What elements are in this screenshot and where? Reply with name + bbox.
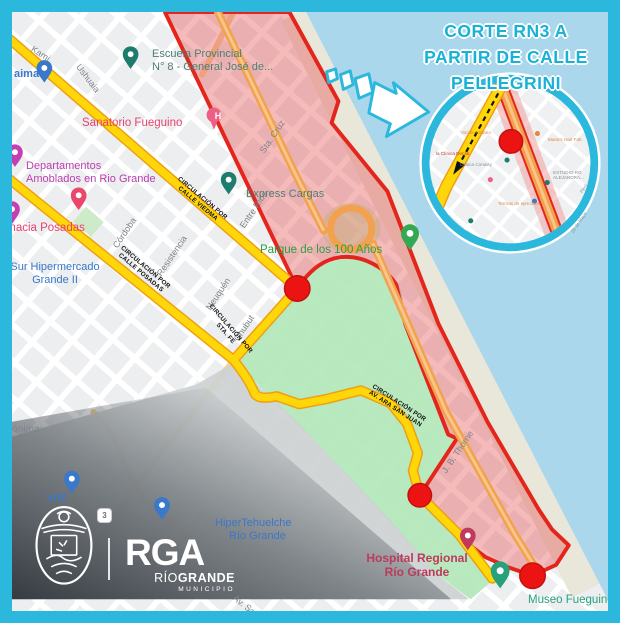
map-area: CORTE RN3 A PARTIR DE CALLE PELLEGRINI K… <box>12 12 608 611</box>
poi-escuela: Escuela Provincial N° 8 - General José d… <box>152 48 273 73</box>
title-line3: PELLEGRINI <box>400 70 608 96</box>
poi-anonima: Anónima <box>12 424 39 436</box>
poi-parque: Parque de los 100 Años <box>260 244 382 257</box>
poi-farmacia: Farmacia Posadas <box>12 222 85 235</box>
inset-label-vocale: Vocale Italiano <box>461 130 491 135</box>
route-3-shield: 3 <box>98 509 111 522</box>
poi-hipertehuelche: HiperTehuelche Río Grande <box>215 517 291 542</box>
closure-dot-a <box>285 276 310 301</box>
title-line2: PARTIR DE CALLE <box>400 44 608 70</box>
inset-label-estudio: ESTUDIO RG ALEJANDRA... <box>553 170 584 181</box>
poi-museo: Museo Fueguino <box>528 594 608 607</box>
logo-subtitle: MUNICIPIO <box>125 586 235 593</box>
inset-label-termas: Termas de ejercicios <box>498 201 540 206</box>
closure-dot-c <box>520 563 545 588</box>
poi-aima: aima <box>14 68 39 81</box>
inset-closure-dot <box>499 130 523 154</box>
title-line1: CORTE RN3 A <box>400 18 608 44</box>
poi-sanatorio: Sanatorio Fueguino <box>82 117 182 130</box>
closure-dot-b <box>408 484 432 508</box>
poi-hospital-regional: Hospital Regional Río Grande <box>342 552 492 580</box>
inset-label-conway: Clínica Conway <box>460 162 492 167</box>
hospital-h-icon: H <box>211 111 225 121</box>
poi-departamentos: Departamentos Amoblados en Rio Grande <box>26 160 156 185</box>
road-closure-flyer: CORTE RN3 A PARTIR DE CALLE PELLEGRINI K… <box>0 0 620 623</box>
poi-express-cargas: Express Cargas <box>246 188 324 201</box>
inset-label-clinica-dental: la Clínica Dental <box>436 151 469 156</box>
poi-ypf: YPF <box>46 493 67 506</box>
poi-hipermercado: Sur Hipermercado Grande II <box>12 261 110 286</box>
logo-city: RÍOGRANDE <box>125 571 235 585</box>
inset-label-hair: Maria's Hair Fab <box>548 137 582 142</box>
flyer-title: CORTE RN3 A PARTIR DE CALLE PELLEGRINI <box>400 18 608 96</box>
logo-acronym: RGA <box>125 532 204 574</box>
logo-divider <box>108 538 110 580</box>
